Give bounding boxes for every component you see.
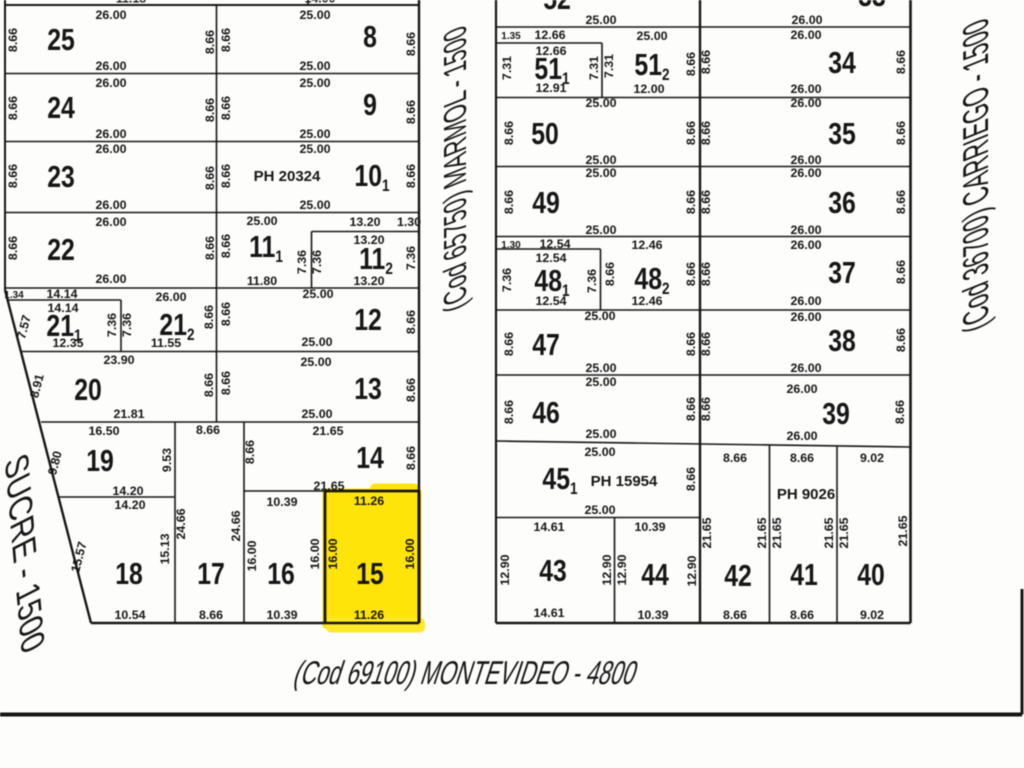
svg-text:1.30: 1.30 [501,240,521,251]
svg-text:8.66: 8.66 [203,166,217,190]
svg-text:25.00: 25.00 [636,29,667,43]
svg-text:25.00: 25.00 [246,214,277,228]
svg-text:12.54: 12.54 [539,237,570,251]
svg-text:PH 20324: PH 20324 [254,168,321,185]
svg-text:14: 14 [356,440,384,474]
svg-text:24.66: 24.66 [174,508,188,539]
svg-text:(Cod 65750) MARMOL - 1500: (Cod 65750) MARMOL - 1500 [438,20,474,317]
svg-text:8.66: 8.66 [6,28,20,52]
svg-text:15.13: 15.13 [158,533,172,564]
svg-text:26.00: 26.00 [790,294,821,308]
svg-text:25.00: 25.00 [299,127,330,141]
svg-text:16.00: 16.00 [403,538,417,569]
svg-text:8.66: 8.66 [699,190,713,214]
svg-text:1.30: 1.30 [397,215,421,229]
svg-text:7.36: 7.36 [120,313,134,337]
svg-text:42: 42 [724,558,752,592]
svg-text:12.90: 12.90 [600,554,614,585]
svg-text:8.66: 8.66 [404,310,418,334]
svg-text:10.39: 10.39 [266,495,297,509]
svg-text:25.00: 25.00 [585,96,616,110]
svg-text:8.66: 8.66 [699,332,713,356]
svg-text:26.00: 26.00 [790,166,821,180]
svg-text:26.00: 26.00 [786,382,817,396]
svg-text:26.00: 26.00 [95,8,126,22]
svg-text:7.36: 7.36 [585,269,599,293]
svg-text:52: 52 [543,0,571,16]
svg-text:25.00: 25.00 [585,166,616,180]
svg-text:12.54: 12.54 [535,294,566,308]
svg-text:8.66: 8.66 [219,371,233,395]
svg-text:8.66: 8.66 [404,446,418,470]
svg-text:8.66: 8.66 [219,96,233,120]
svg-text:(Cod 36700) CARRIEGO - 150: (Cod 36700) CARRIEGO - 1500 [955,13,995,339]
svg-text:8.66: 8.66 [699,397,713,421]
svg-text:25.00: 25.00 [585,427,616,441]
svg-text:25: 25 [47,22,75,56]
svg-text:26.00: 26.00 [95,272,126,286]
svg-text:7.36: 7.36 [500,268,514,292]
svg-text:21.65: 21.65 [896,515,910,546]
svg-text:19: 19 [86,443,114,477]
svg-text:44: 44 [641,557,669,591]
svg-text:25.00: 25.00 [299,59,330,73]
svg-text:49: 49 [532,185,560,219]
svg-text:PH 15954: PH 15954 [591,473,658,490]
svg-text:41: 41 [790,557,818,591]
svg-text:12.35: 12.35 [52,336,83,350]
svg-text:25.00: 25.00 [299,8,330,22]
svg-text:39: 39 [822,396,850,430]
svg-text:26.00: 26.00 [790,82,821,96]
svg-text:8.66: 8.66 [6,164,20,188]
svg-text:21.65: 21.65 [837,517,851,548]
svg-text:26.00: 26.00 [95,198,126,212]
svg-text:8.66: 8.66 [502,400,516,424]
svg-text:26.00: 26.00 [95,59,126,73]
svg-text:8.66: 8.66 [699,50,713,74]
svg-text:12.90: 12.90 [498,554,512,585]
svg-text:12.66: 12.66 [534,28,565,42]
svg-text:14.14: 14.14 [46,287,77,301]
svg-text:11.18: 11.18 [116,0,146,6]
svg-text:21.65: 21.65 [312,424,343,438]
svg-text:25.00: 25.00 [584,503,615,517]
svg-text:25.00: 25.00 [585,223,616,237]
svg-text:8.66: 8.66 [684,121,698,145]
svg-text:22: 22 [47,232,75,266]
svg-text:10.39: 10.39 [637,608,668,622]
svg-text:26.00: 26.00 [95,142,126,156]
svg-text:12: 12 [354,302,382,336]
svg-text:26.00: 26.00 [786,429,817,443]
svg-text:14.20: 14.20 [114,498,145,512]
svg-text:12.46: 12.46 [631,294,662,308]
svg-text:8.66: 8.66 [894,50,908,74]
svg-text:10.39: 10.39 [634,520,665,534]
svg-text:12.91: 12.91 [535,81,566,95]
svg-text:13.20: 13.20 [353,274,384,288]
svg-text:8.66: 8.66 [684,332,698,356]
svg-text:8.66: 8.66 [196,423,220,437]
svg-text:8.66: 8.66 [203,98,217,122]
svg-text:8.66: 8.66 [219,234,233,258]
svg-text:33: 33 [858,0,886,13]
svg-text:21.65: 21.65 [700,517,714,548]
svg-text:47: 47 [532,327,560,361]
svg-text:35: 35 [828,116,856,150]
svg-text:8.66: 8.66 [790,608,814,622]
svg-text:11.80: 11.80 [247,274,277,288]
svg-text:37: 37 [828,255,856,289]
svg-text:25.00: 25.00 [299,142,330,156]
svg-text:21.65: 21.65 [822,517,836,548]
svg-text:7.31: 7.31 [602,54,616,78]
svg-text:34: 34 [828,45,856,79]
svg-text:10.39: 10.39 [266,608,297,622]
svg-text:8.66: 8.66 [684,397,698,421]
svg-text:18: 18 [115,556,143,590]
svg-text:11.26: 11.26 [354,494,384,508]
svg-text:8.66: 8.66 [723,451,747,465]
svg-text:14.61: 14.61 [533,520,564,534]
svg-text:25.00: 25.00 [585,375,616,389]
svg-text:(Cod 69100) MONTEVIDEO - 4: (Cod 69100) MONTEVIDEO - 4800 [289,655,642,692]
svg-text:8.66: 8.66 [6,96,20,120]
svg-text:26.00: 26.00 [95,215,126,229]
svg-text:8.66: 8.66 [790,451,814,465]
svg-text:8.66: 8.66 [502,190,516,214]
svg-text:8.66: 8.66 [894,328,908,352]
svg-text:8.66: 8.66 [6,236,20,260]
svg-text:26.00: 26.00 [790,28,821,42]
svg-text:26.00: 26.00 [95,76,126,90]
svg-text:38: 38 [828,323,856,357]
svg-text:21.65: 21.65 [755,517,769,548]
svg-text:8.66: 8.66 [699,262,713,286]
svg-text:25.00: 25.00 [301,407,332,421]
svg-text:14.20: 14.20 [112,484,143,498]
svg-text:8.66: 8.66 [893,400,907,424]
svg-text:16.00: 16.00 [308,538,322,569]
svg-text:8.66: 8.66 [404,32,418,56]
svg-text:8.66: 8.66 [199,608,223,622]
svg-text:26.00: 26.00 [790,310,821,324]
svg-text:9: 9 [363,87,377,121]
svg-text:9.53: 9.53 [160,448,174,472]
svg-text:46: 46 [532,395,560,429]
svg-text:7.36: 7.36 [310,250,324,274]
svg-text:25.00: 25.00 [299,76,330,90]
svg-text:7.36: 7.36 [295,250,309,274]
svg-text:9.02: 9.02 [860,608,884,622]
svg-text:26.00: 26.00 [790,238,821,252]
svg-text:26.00: 26.00 [790,361,821,375]
svg-text:26.00: 26.00 [791,13,822,27]
svg-text:26.00: 26.00 [790,153,821,167]
svg-text:7.36: 7.36 [404,246,418,270]
svg-text:12.00: 12.00 [633,82,664,96]
svg-text:17: 17 [197,556,225,590]
svg-text:8.66: 8.66 [684,467,698,491]
svg-text:26.00: 26.00 [95,127,126,141]
svg-text:8.66: 8.66 [894,260,908,284]
svg-text:12.90: 12.90 [615,554,629,585]
svg-text:7.36: 7.36 [105,313,119,337]
svg-text:8.66: 8.66 [684,262,698,286]
svg-text:8.66: 8.66 [203,236,217,260]
svg-text:13.20: 13.20 [349,215,380,229]
svg-text:20: 20 [74,372,102,406]
svg-text:9.02: 9.02 [860,451,884,465]
svg-text:15: 15 [356,556,384,590]
svg-text:24: 24 [47,90,75,124]
svg-text:13: 13 [354,371,382,405]
svg-text:23: 23 [47,159,75,193]
svg-text:8.66: 8.66 [243,440,257,464]
svg-text:8.66: 8.66 [219,164,233,188]
svg-text:25.00: 25.00 [300,355,331,369]
svg-text:23.90: 23.90 [103,353,134,367]
svg-text:25.00: 25.00 [585,361,616,375]
svg-text:8.66: 8.66 [502,332,516,356]
svg-text:16.50: 16.50 [88,424,119,438]
svg-text:25.00: 25.00 [301,335,332,349]
svg-text:8.66: 8.66 [219,302,233,326]
svg-text:12.90: 12.90 [685,555,699,586]
svg-text:21.65: 21.65 [313,479,344,493]
svg-text:14.00: 14.00 [304,0,335,6]
svg-text:8.66: 8.66 [894,121,908,145]
svg-text:12.46: 12.46 [631,238,662,252]
svg-text:8.66: 8.66 [684,190,698,214]
svg-text:26.00: 26.00 [155,290,186,304]
svg-text:43: 43 [539,553,567,587]
svg-text:40: 40 [857,557,885,591]
svg-text:36: 36 [828,185,856,219]
svg-text:8.66: 8.66 [404,164,418,188]
svg-text:16.00: 16.00 [245,540,259,571]
svg-text:1.34: 1.34 [4,290,24,301]
svg-text:8: 8 [363,19,377,53]
svg-text:25.00: 25.00 [585,13,616,27]
svg-text:10.54: 10.54 [114,608,145,622]
svg-text:8.66: 8.66 [202,373,216,397]
svg-text:11.26: 11.26 [354,608,384,622]
svg-text:PH 9026: PH 9026 [777,486,835,503]
svg-text:25.00: 25.00 [584,309,615,323]
svg-text:25.00: 25.00 [585,153,616,167]
svg-text:14.61: 14.61 [533,606,564,620]
svg-text:8.66: 8.66 [219,28,233,52]
svg-text:50: 50 [531,116,559,150]
svg-text:25.00: 25.00 [302,287,333,301]
svg-text:8.66: 8.66 [202,305,216,329]
svg-text:25.00: 25.00 [584,445,615,459]
svg-text:8.66: 8.66 [603,262,617,286]
svg-text:7.31: 7.31 [500,56,514,80]
svg-text:8.66: 8.66 [684,52,698,76]
svg-text:8.66: 8.66 [203,30,217,54]
svg-text:16: 16 [267,556,295,590]
svg-text:8.66: 8.66 [894,190,908,214]
svg-text:21.65: 21.65 [770,517,784,548]
svg-text:26.00: 26.00 [790,223,821,237]
svg-text:8.66: 8.66 [404,100,418,124]
svg-text:21.81: 21.81 [113,407,144,421]
svg-text:26.00: 26.00 [790,96,821,110]
svg-text:16.00: 16.00 [326,538,340,569]
svg-text:11.55: 11.55 [151,336,181,350]
svg-text:8.66: 8.66 [404,378,418,402]
svg-text:8.66: 8.66 [723,608,747,622]
svg-text:7.31: 7.31 [587,56,601,80]
svg-text:8.66: 8.66 [699,121,713,145]
svg-text:8.66: 8.66 [502,121,516,145]
svg-text:1.35: 1.35 [501,31,521,42]
svg-text:24.66: 24.66 [229,510,243,541]
svg-text:25.00: 25.00 [299,198,330,212]
